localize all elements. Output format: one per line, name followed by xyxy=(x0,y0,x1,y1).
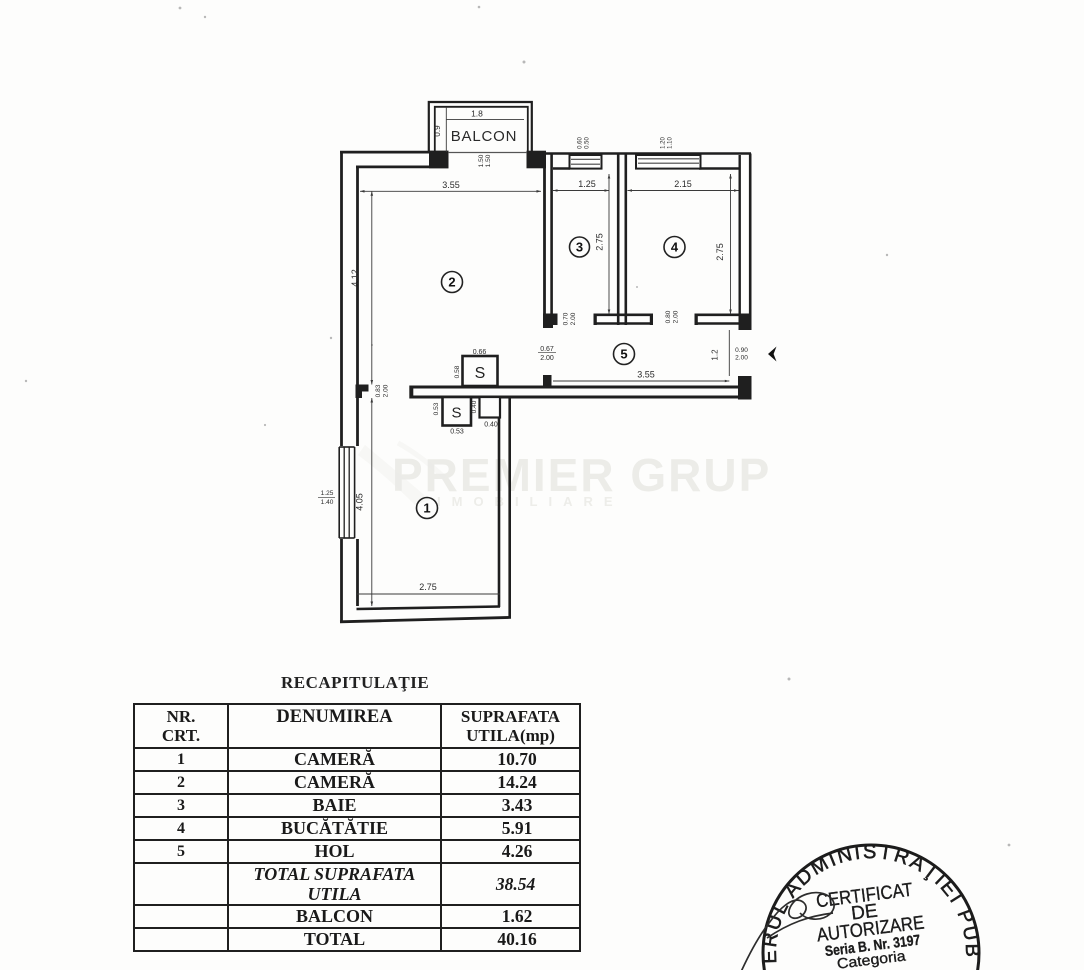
svg-text:2.75: 2.75 xyxy=(419,582,437,592)
svg-text:1.25: 1.25 xyxy=(321,490,334,497)
svg-text:5: 5 xyxy=(620,347,627,362)
svg-text:2.00: 2.00 xyxy=(673,310,680,323)
svg-text:3.55: 3.55 xyxy=(442,180,460,190)
svg-text:0.53: 0.53 xyxy=(450,429,464,436)
svg-text:1: 1 xyxy=(423,501,430,516)
svg-text:3: 3 xyxy=(576,240,583,255)
svg-text:1.40: 1.40 xyxy=(321,499,334,506)
svg-text:2.75: 2.75 xyxy=(715,243,725,261)
svg-text:0.9: 0.9 xyxy=(433,125,442,137)
svg-text:2.00: 2.00 xyxy=(570,312,577,325)
svg-text:2.75: 2.75 xyxy=(595,233,605,251)
svg-text:1.10: 1.10 xyxy=(668,137,674,149)
svg-text:2.00: 2.00 xyxy=(383,384,390,397)
svg-text:2: 2 xyxy=(448,275,455,290)
svg-text:4: 4 xyxy=(671,240,679,255)
svg-text:0.40: 0.40 xyxy=(471,400,478,413)
svg-text:0.90: 0.90 xyxy=(735,347,748,354)
svg-text:0.80: 0.80 xyxy=(665,310,672,323)
svg-text:2.15: 2.15 xyxy=(674,179,692,189)
svg-text:0.60: 0.60 xyxy=(578,137,584,149)
svg-text:1.50: 1.50 xyxy=(478,154,485,167)
svg-text:0.50: 0.50 xyxy=(585,137,591,149)
svg-text:S: S xyxy=(451,405,461,422)
svg-text:1.50: 1.50 xyxy=(485,154,492,167)
svg-text:1.2: 1.2 xyxy=(711,349,720,361)
svg-text:0.83: 0.83 xyxy=(375,384,382,397)
svg-text:BALCON: BALCON xyxy=(451,128,518,145)
svg-text:0.40: 0.40 xyxy=(484,422,498,429)
svg-text:2.00: 2.00 xyxy=(735,355,748,362)
svg-text:4.05: 4.05 xyxy=(355,493,365,511)
svg-text:4.12: 4.12 xyxy=(350,269,360,287)
svg-text:IMOBILIARE: IMOBILIARE xyxy=(437,494,624,509)
svg-text:S: S xyxy=(475,365,486,382)
svg-text:1.8: 1.8 xyxy=(471,109,483,119)
svg-text:0.53: 0.53 xyxy=(433,402,440,415)
svg-text:1.25: 1.25 xyxy=(578,179,596,189)
svg-text:3.55: 3.55 xyxy=(637,370,655,380)
svg-text:0.70: 0.70 xyxy=(563,312,570,325)
svg-text:2.00: 2.00 xyxy=(540,355,554,362)
svg-text:0.58: 0.58 xyxy=(454,365,461,378)
svg-text:0.67: 0.67 xyxy=(540,346,554,353)
svg-text:1.20: 1.20 xyxy=(661,137,667,149)
svg-text:0.66: 0.66 xyxy=(473,349,487,356)
